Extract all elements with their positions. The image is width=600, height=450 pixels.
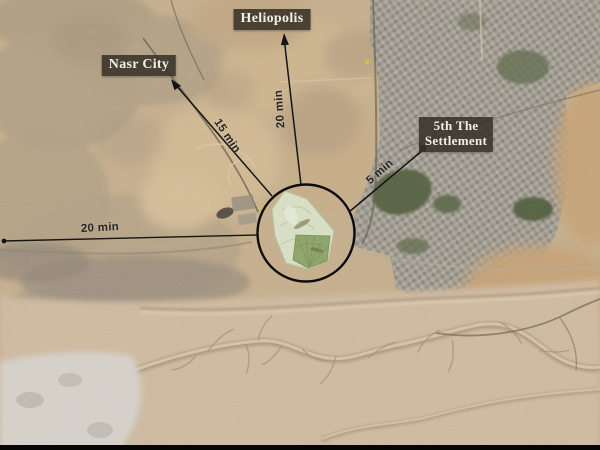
letterbox-bar	[0, 445, 600, 450]
place-label-text-line1: 5th The	[425, 119, 487, 134]
leader-line-west	[2, 235, 257, 243]
place-label-text: Heliopolis	[241, 11, 304, 27]
leader-line-fifth-settlement	[349, 145, 426, 212]
arrowhead-heliopolis	[281, 33, 289, 45]
place-label-text-line2: Settlement	[425, 134, 487, 149]
highlight-circle	[258, 185, 355, 282]
annotated-satellite-map: Heliopolis Nasr City 5th The Settlement …	[0, 0, 600, 450]
place-label-nasr-city: Nasr City	[102, 55, 176, 76]
place-label-text: Nasr City	[109, 57, 169, 73]
travel-time-heliopolis: 20 min	[273, 90, 288, 129]
travel-time-west: 20 min	[81, 221, 120, 235]
place-label-fifth-settlement: 5th The Settlement	[419, 117, 493, 152]
endpoint-dot-west	[2, 239, 7, 244]
place-label-heliopolis: Heliopolis	[234, 9, 311, 30]
